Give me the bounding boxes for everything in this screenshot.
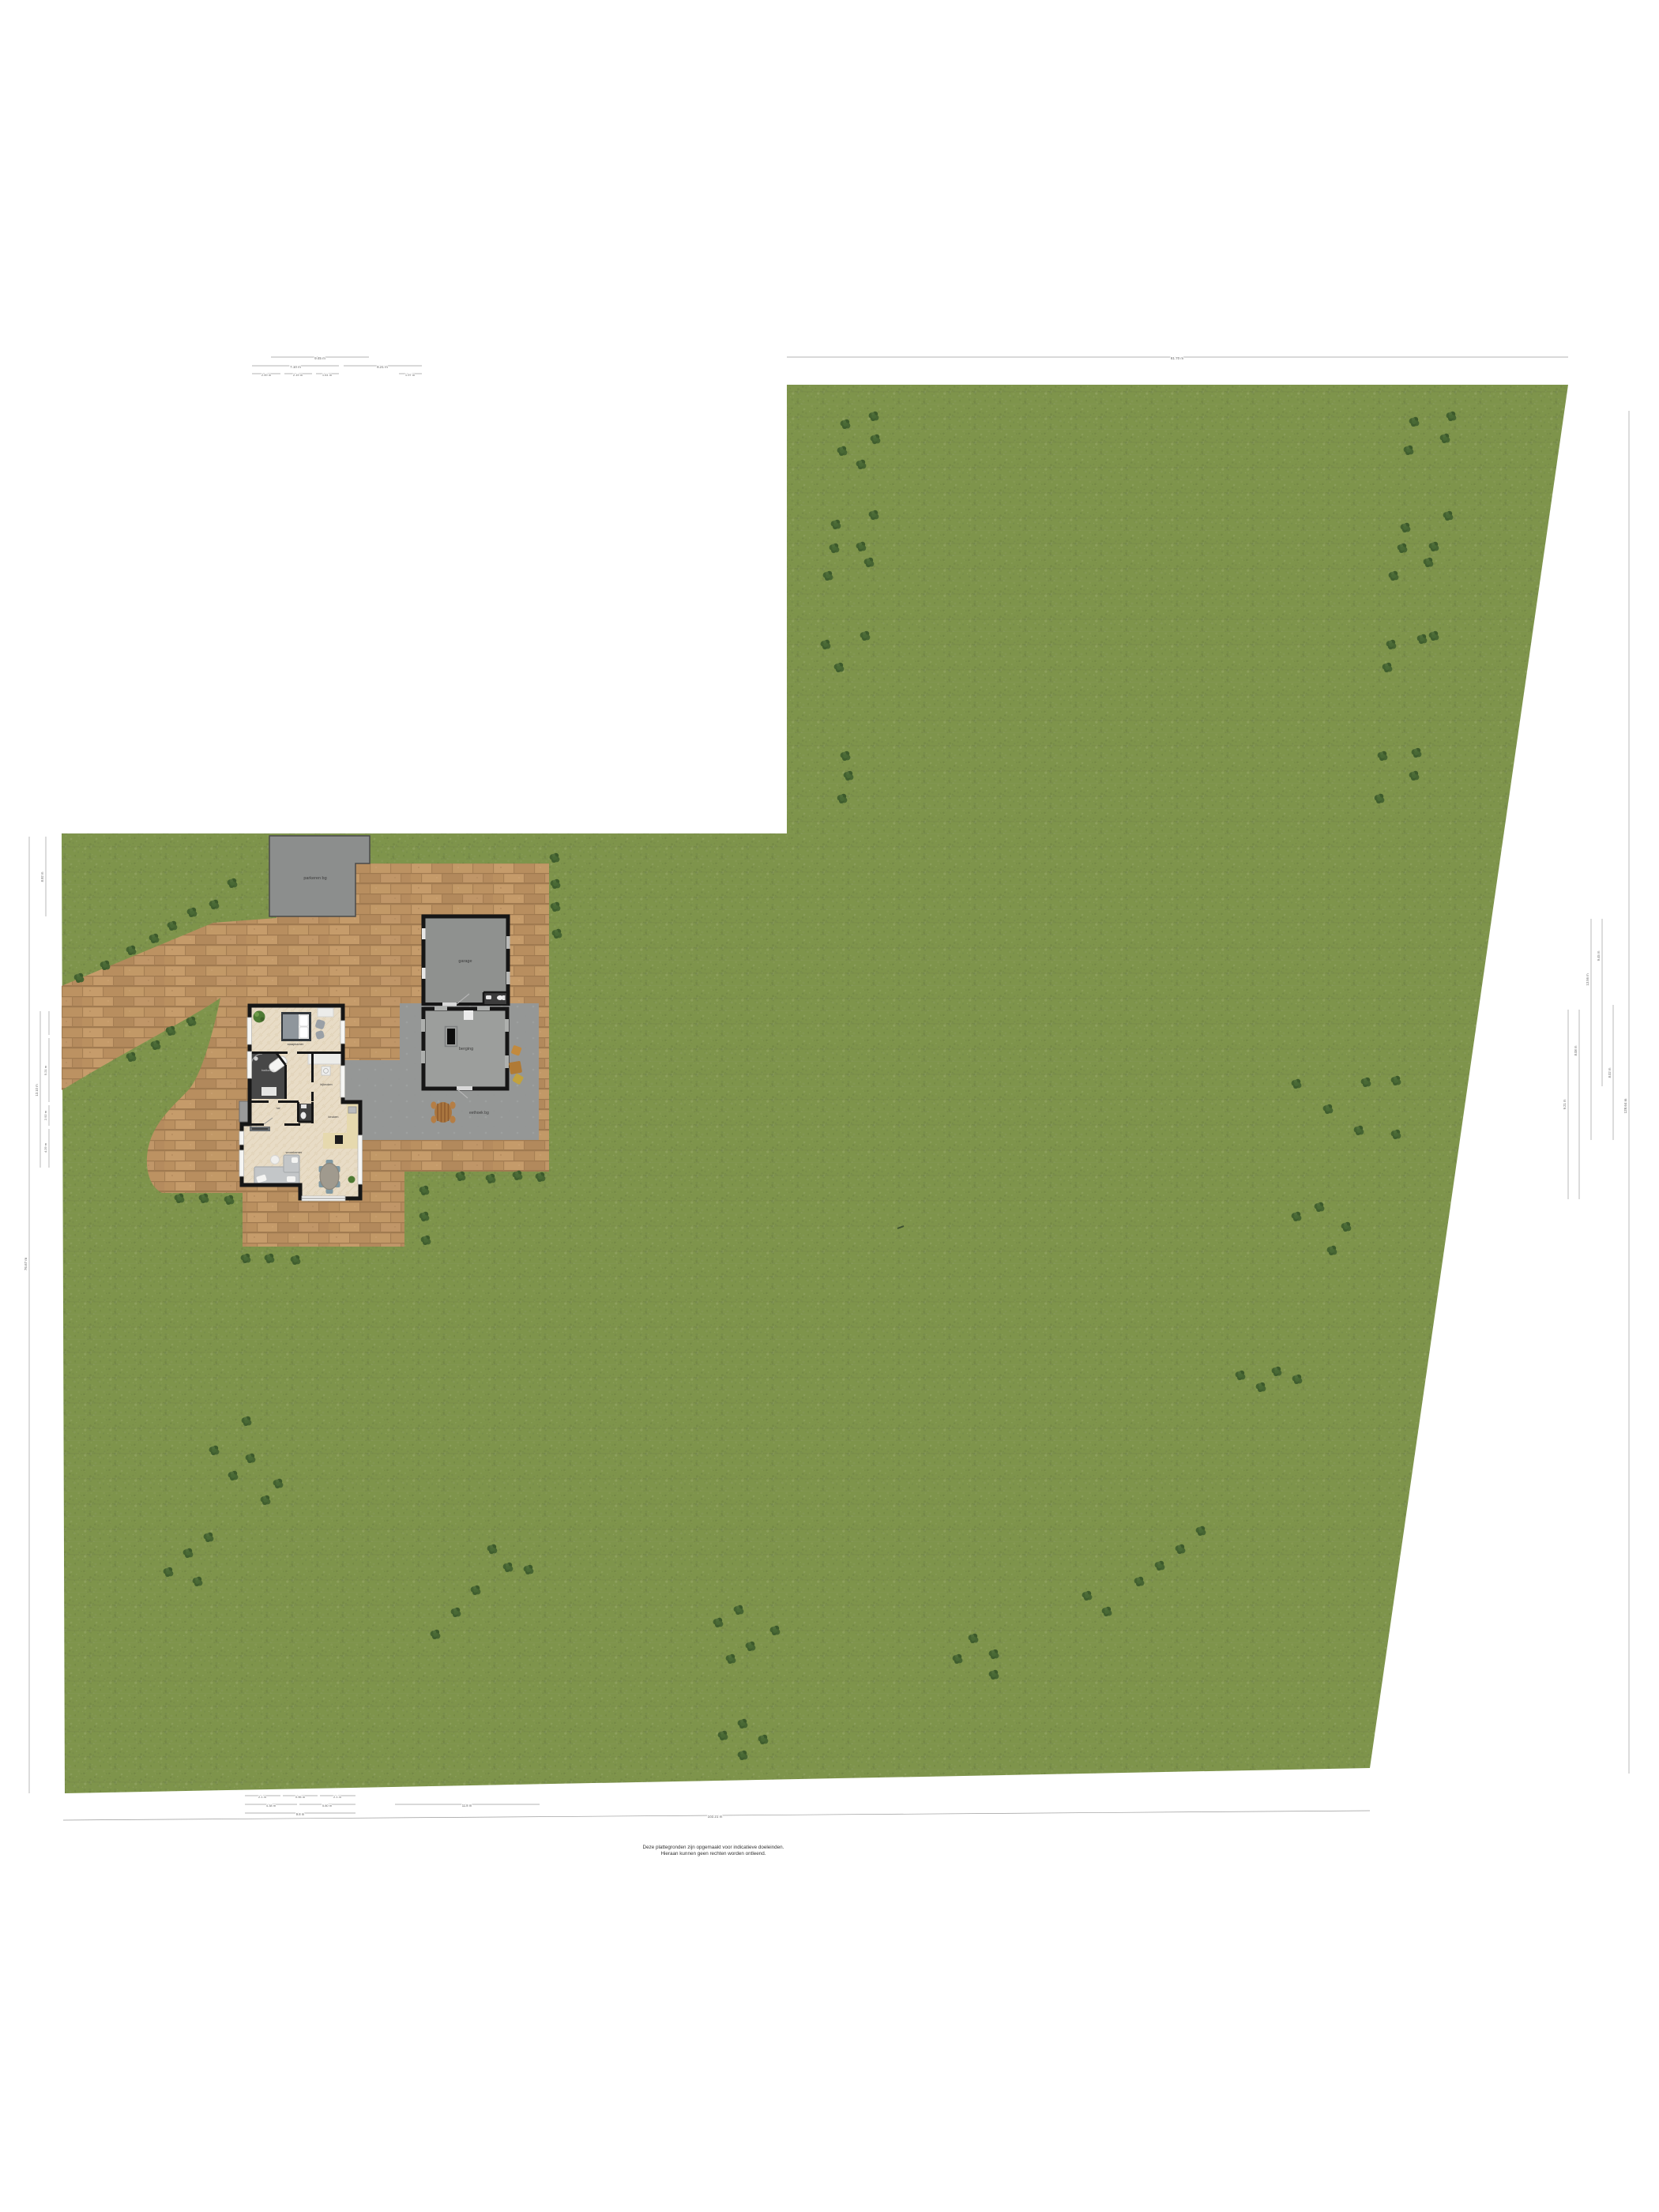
svg-text:2.92 m: 2.92 m xyxy=(43,1110,47,1120)
svg-text:8.21 m: 8.21 m xyxy=(377,365,388,369)
svg-text:81.70 m: 81.70 m xyxy=(1171,356,1184,360)
svg-text:9.8 m: 9.8 m xyxy=(296,1812,305,1816)
svg-text:13.10 m: 13.10 m xyxy=(35,1084,39,1097)
svg-text:garage: garage xyxy=(458,959,472,964)
svg-text:13.56 m: 13.56 m xyxy=(1586,973,1589,986)
svg-text:2.1 m: 2.1 m xyxy=(333,1795,342,1799)
svg-text:keuken: keuken xyxy=(329,1115,339,1119)
svg-text:2.49 m: 2.49 m xyxy=(261,373,272,377)
svg-text:9.21 m: 9.21 m xyxy=(1563,1099,1567,1109)
svg-text:1.61 m: 1.61 m xyxy=(322,373,333,377)
svg-text:1.97 m: 1.97 m xyxy=(405,373,416,377)
svg-text:4.29 m: 4.29 m xyxy=(43,1142,47,1153)
svg-text:badkamer: badkamer xyxy=(261,1069,275,1072)
svg-text:7.10 m: 7.10 m xyxy=(290,365,301,369)
svg-text:11.8 m: 11.8 m xyxy=(462,1804,472,1808)
svg-text:76.67 m: 76.67 m xyxy=(24,1258,28,1271)
svg-text:parkeren bg: parkeren bg xyxy=(303,876,326,881)
svg-text:hal: hal xyxy=(276,1107,280,1110)
svg-text:9.45 m: 9.45 m xyxy=(1597,950,1601,961)
svg-text:102.21 m: 102.21 m xyxy=(708,1815,723,1819)
svg-text:0.96 m: 0.96 m xyxy=(295,1795,306,1799)
svg-text:Hieraan kunnen geen rechten wo: Hieraan kunnen geen rechten worden ontle… xyxy=(660,1851,766,1856)
svg-text:128.64 m: 128.64 m xyxy=(1623,1098,1627,1113)
svg-text:4.38 m: 4.38 m xyxy=(266,1804,276,1808)
svg-text:eethoek bg: eethoek bg xyxy=(469,1111,489,1115)
svg-text:8.92 m: 8.92 m xyxy=(40,871,44,882)
svg-text:bijkeuken: bijkeuken xyxy=(320,1083,332,1086)
svg-text:Deze plattegronden zijn opgema: Deze plattegronden zijn opgemaakt voor i… xyxy=(643,1845,784,1850)
svg-text:2.1 m: 2.1 m xyxy=(258,1795,267,1799)
svg-text:2.19 m: 2.19 m xyxy=(293,373,303,377)
svg-text:8.08 m: 8.08 m xyxy=(1574,1045,1578,1055)
svg-text:5.80 m: 5.80 m xyxy=(322,1804,333,1808)
svg-text:8.02 m: 8.02 m xyxy=(1608,1067,1612,1078)
svg-text:9.45 m: 9.45 m xyxy=(314,356,325,360)
svg-text:5.21 m: 5.21 m xyxy=(43,1065,47,1075)
svg-text:woonkamer: woonkamer xyxy=(286,1150,303,1154)
svg-text:berging: berging xyxy=(459,1047,473,1051)
svg-text:slaapkamer: slaapkamer xyxy=(288,1042,304,1046)
